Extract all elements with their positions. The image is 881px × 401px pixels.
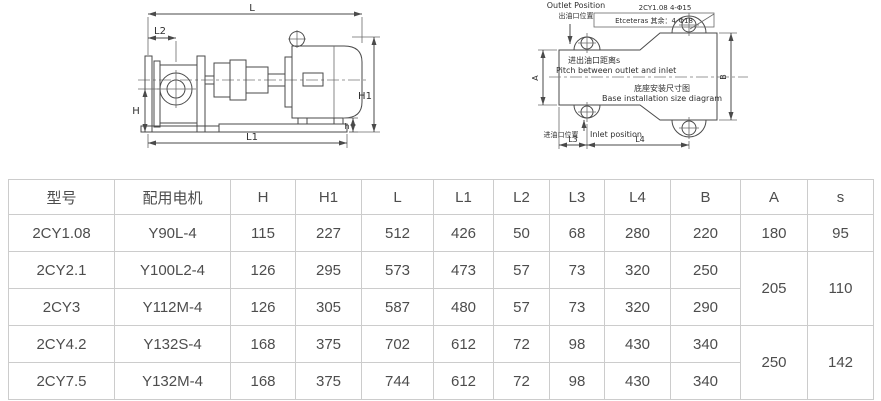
motor-nameplate	[303, 73, 323, 86]
table-cell: 126	[231, 289, 296, 326]
table-cell: 73	[550, 252, 605, 289]
dim-label-H: H	[132, 106, 140, 117]
dim-label-L: L	[249, 3, 255, 14]
diagram-title-en: Base installation size diagram	[602, 94, 722, 103]
inlet-position-label-en: Inlet position	[590, 130, 642, 139]
table-cell: 98	[550, 326, 605, 363]
callout-hole-size-others: Etceteras 其余：4-Φ18	[615, 16, 693, 25]
table-cell: 295	[296, 252, 362, 289]
table-cell: 340	[671, 363, 741, 400]
table-row: 2CY1.08 Y90L-4 115 227 512 426 50 68 280…	[9, 215, 874, 252]
table-cell-merged: 110	[808, 252, 874, 326]
table-cell: 50	[494, 215, 550, 252]
column-header-H1: H1	[296, 180, 362, 215]
pump-inner-flange	[154, 61, 160, 127]
table-cell: 95	[808, 215, 874, 252]
cell-model: 2CY3	[9, 289, 115, 326]
table-cell: 430	[605, 326, 671, 363]
column-header-model: 型号	[9, 180, 115, 215]
table-cell: 220	[671, 215, 741, 252]
column-header-s: s	[808, 180, 874, 215]
table-cell: 320	[605, 289, 671, 326]
table-cell: 126	[231, 252, 296, 289]
table-cell: 305	[296, 289, 362, 326]
technical-drawings: L L2 H1 H L1 h	[0, 0, 881, 172]
pump-spec-sheet: L L2 H1 H L1 h	[0, 0, 881, 401]
table-cell: 340	[671, 326, 741, 363]
table-cell: 72	[494, 363, 550, 400]
dim-label-H1: H1	[358, 91, 372, 102]
table-cell: 480	[434, 289, 494, 326]
table-cell: 68	[550, 215, 605, 252]
cell-model: 2CY7.5	[9, 363, 115, 400]
table-cell: 290	[671, 289, 741, 326]
motor-foot-left	[298, 118, 307, 124]
table-cell: 473	[434, 252, 494, 289]
column-header-L2: L2	[494, 180, 550, 215]
column-header-L1: L1	[434, 180, 494, 215]
diagram-title-zh: 底座安装尺寸图	[634, 83, 690, 93]
cell-motor: Y132M-4	[115, 363, 231, 400]
dim-label-B: B	[719, 74, 728, 80]
column-header-L: L	[362, 180, 434, 215]
base-installation-diagram: Outlet Position 出油口位置 2CY1.08 4-Φ15 Etce…	[531, 1, 748, 149]
dim-label-A: A	[531, 75, 540, 81]
table-cell: 587	[362, 289, 434, 326]
table-cell-merged: 250	[741, 326, 808, 400]
table-cell: 115	[231, 215, 296, 252]
table-cell: 280	[605, 215, 671, 252]
table-cell: 375	[296, 363, 362, 400]
column-header-H: H	[231, 180, 296, 215]
table-cell: 57	[494, 289, 550, 326]
table-cell: 612	[434, 363, 494, 400]
bed-plate	[219, 124, 347, 132]
table-cell: 744	[362, 363, 434, 400]
dim-label-L2: L2	[154, 26, 166, 37]
callout-hole-size-model: 2CY1.08 4-Φ15	[639, 4, 692, 12]
table-cell: 250	[671, 252, 741, 289]
dimension-table: 型号 配用电机 H H1 L L1 L2 L3 L4 B A s 2CY1.08…	[8, 179, 874, 400]
dim-label-L1: L1	[246, 132, 258, 143]
column-header-L3: L3	[550, 180, 605, 215]
cell-motor: Y100L2-4	[115, 252, 231, 289]
column-header-B: B	[671, 180, 741, 215]
table-cell: 168	[231, 363, 296, 400]
column-header-motor: 配用电机	[115, 180, 231, 215]
cell-motor: Y132S-4	[115, 326, 231, 363]
table-cell: 168	[231, 326, 296, 363]
dim-label-h: h	[344, 122, 349, 131]
table-row: 2CY2.1 Y100L2-4 126 295 573 473 57 73 32…	[9, 252, 874, 289]
table-cell: 573	[362, 252, 434, 289]
table-row: 2CY4.2 Y132S-4 168 375 702 612 72 98 430…	[9, 326, 874, 363]
table-cell: 612	[434, 326, 494, 363]
table-cell: 430	[605, 363, 671, 400]
pump-side-view-diagram: L L2 H1 H L1 h	[132, 3, 380, 148]
table-cell: 227	[296, 215, 362, 252]
table-cell: 180	[741, 215, 808, 252]
motor-flange	[285, 57, 292, 107]
pitch-label-en: Pitch between outlet and inlet	[556, 66, 676, 75]
pump-front-flange	[145, 56, 152, 132]
cell-model: 2CY2.1	[9, 252, 115, 289]
table-cell: 375	[296, 326, 362, 363]
cell-model: 2CY4.2	[9, 326, 115, 363]
motor-foot-right	[334, 118, 343, 124]
pitch-label-zh: 进出油口距离s	[568, 55, 620, 65]
table-cell: 320	[605, 252, 671, 289]
column-header-A: A	[741, 180, 808, 215]
dim-label-L3: L3	[568, 135, 578, 144]
table-cell: 512	[362, 215, 434, 252]
cell-model: 2CY1.08	[9, 215, 115, 252]
dim-label-L4: L4	[635, 135, 645, 144]
table-cell: 426	[434, 215, 494, 252]
pump-base-block	[141, 126, 219, 132]
outlet-position-label-en: Outlet Position	[547, 1, 605, 10]
outlet-position-label-zh: 出油口位置	[559, 11, 594, 20]
cell-motor: Y90L-4	[115, 215, 231, 252]
cell-motor: Y112M-4	[115, 289, 231, 326]
table-cell: 72	[494, 326, 550, 363]
table-cell-merged: 205	[741, 252, 808, 326]
table-cell: 73	[550, 289, 605, 326]
table-cell: 57	[494, 252, 550, 289]
base-outline	[559, 33, 717, 120]
table-cell: 702	[362, 326, 434, 363]
table-cell-merged: 142	[808, 326, 874, 400]
table-cell: 98	[550, 363, 605, 400]
header-row: 型号 配用电机 H H1 L L1 L2 L3 L4 B A s	[9, 180, 874, 215]
pump-rear-flange	[197, 56, 205, 132]
column-header-L4: L4	[605, 180, 671, 215]
